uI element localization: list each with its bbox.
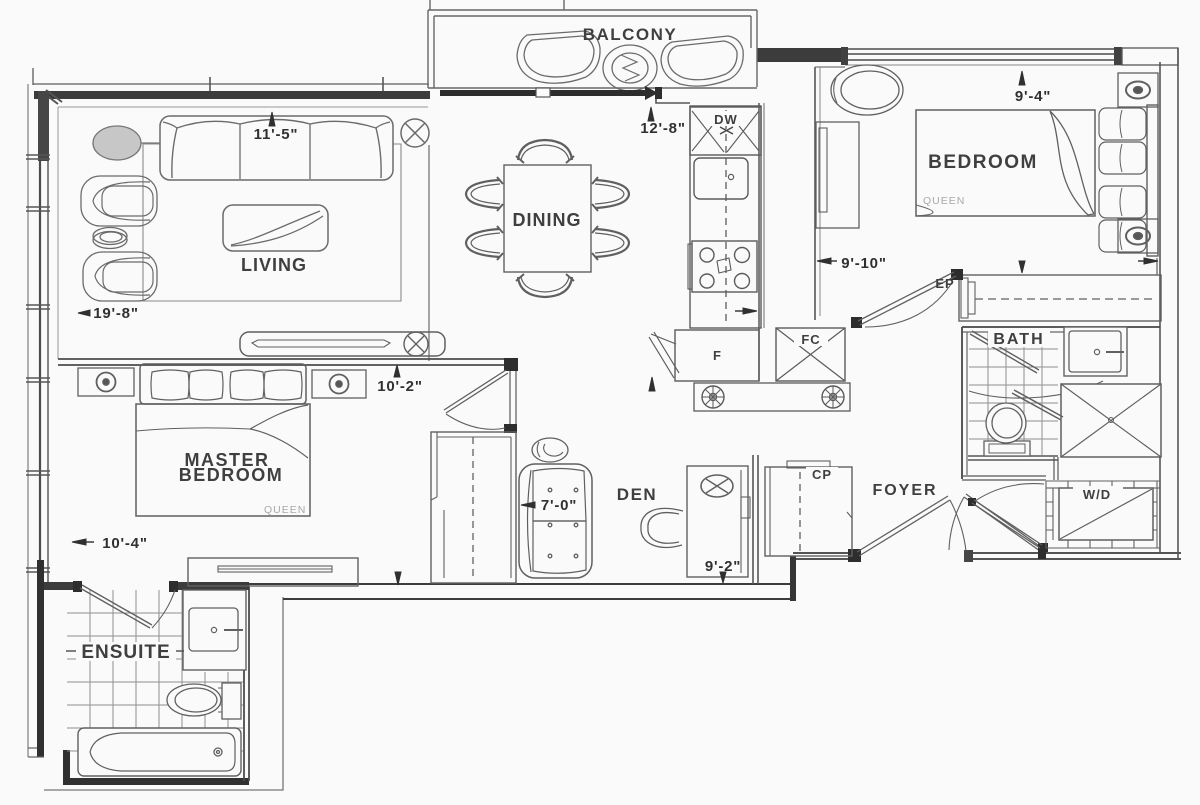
svg-text:12'-8": 12'-8": [640, 120, 686, 137]
svg-text:11'-5": 11'-5": [254, 126, 299, 143]
svg-text:W/D: W/D: [1083, 487, 1111, 502]
svg-text:FC: FC: [801, 332, 820, 347]
svg-text:EP: EP: [935, 276, 954, 291]
svg-text:FOYER: FOYER: [872, 482, 937, 499]
svg-text:QUEEN: QUEEN: [264, 504, 306, 516]
svg-text:DINING: DINING: [513, 210, 582, 230]
svg-text:BALCONY: BALCONY: [583, 25, 678, 44]
svg-text:10'-4": 10'-4": [102, 535, 148, 552]
svg-text:9'-10": 9'-10": [841, 255, 887, 272]
svg-text:10'-2": 10'-2": [377, 378, 423, 395]
svg-text:CP: CP: [812, 467, 832, 482]
svg-text:9'-4": 9'-4": [1015, 88, 1051, 105]
svg-text:19'-8": 19'-8": [93, 305, 139, 322]
svg-text:F: F: [713, 348, 721, 363]
svg-text:DW: DW: [714, 112, 738, 127]
svg-text:ENSUITE: ENSUITE: [81, 642, 170, 663]
svg-text:QUEEN: QUEEN: [923, 195, 965, 207]
svg-text:BATH: BATH: [993, 331, 1044, 348]
svg-text:DEN: DEN: [617, 485, 657, 504]
svg-text:LIVING: LIVING: [241, 255, 307, 275]
svg-text:BEDROOM: BEDROOM: [179, 465, 284, 485]
svg-text:7'-0": 7'-0": [541, 497, 577, 514]
svg-text:BEDROOM: BEDROOM: [928, 152, 1038, 173]
